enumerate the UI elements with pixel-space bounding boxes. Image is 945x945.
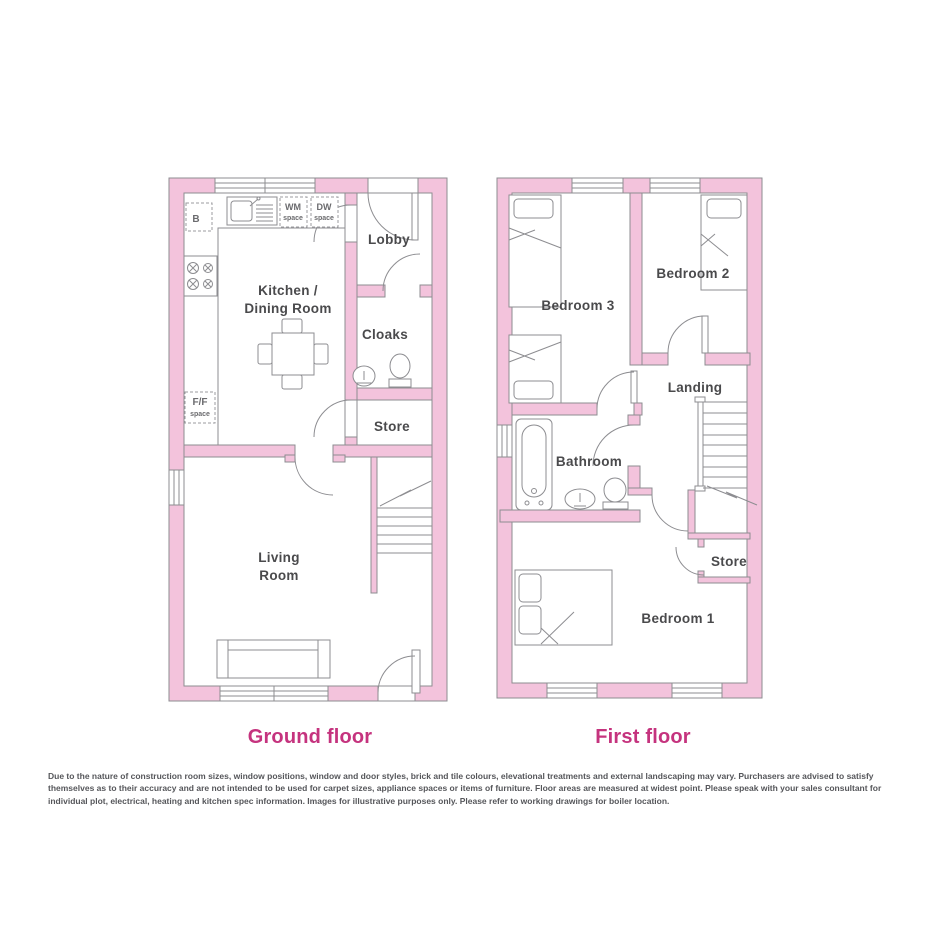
window xyxy=(220,686,328,701)
single-bed xyxy=(509,335,561,403)
sofa xyxy=(217,640,330,678)
room-label-living: Room xyxy=(259,568,298,583)
room-label-bathroom: Bathroom xyxy=(556,454,622,469)
single-bed xyxy=(509,195,561,307)
ground-floor-plan: Kitchen / Dining Room Lobby Cloaks Store… xyxy=(169,178,447,701)
living-room-door xyxy=(295,457,333,495)
window xyxy=(547,683,597,698)
first-floor-caption: First floor xyxy=(503,726,783,749)
sink-icon xyxy=(227,197,277,225)
stairs-direction-arrow xyxy=(380,481,431,506)
front-door xyxy=(368,178,418,240)
bedroom1-door xyxy=(652,495,688,531)
hob-icon xyxy=(184,256,217,296)
label-wm-space: space xyxy=(283,215,303,222)
floorplan-page: Kitchen / Dining Room Lobby Cloaks Store… xyxy=(0,0,945,945)
label-wm: WM xyxy=(285,202,301,212)
room-label-bedroom1: Bedroom 1 xyxy=(641,611,714,626)
bedroom3-door xyxy=(597,371,637,409)
dining-table xyxy=(258,319,328,389)
window xyxy=(650,178,700,193)
rear-door xyxy=(378,650,420,701)
window xyxy=(572,178,623,193)
label-ff-space: space xyxy=(190,411,210,418)
bedroom2-door xyxy=(668,316,708,353)
window xyxy=(215,178,315,193)
first-floor-plan: Bedroom 3 Bedroom 2 Landing Bathroom Sto… xyxy=(497,178,762,698)
room-label-kitchen: Kitchen / xyxy=(258,283,318,298)
label-ff: F/F xyxy=(193,397,208,408)
room-label-cloaks: Cloaks xyxy=(362,327,408,342)
window xyxy=(497,425,512,457)
window xyxy=(169,470,184,505)
disclaimer-text: Due to the nature of construction room s… xyxy=(48,770,898,807)
room-label-bedroom2: Bedroom 2 xyxy=(656,266,729,281)
window xyxy=(672,683,722,698)
toilet-icon xyxy=(603,478,628,509)
basin-icon xyxy=(565,489,595,509)
room-label-living: Living xyxy=(258,550,300,565)
interior-walls xyxy=(184,193,432,593)
toilet-icon xyxy=(389,354,411,387)
ground-floor-caption: Ground floor xyxy=(170,726,450,749)
label-dw: DW xyxy=(317,202,332,212)
label-dw-space: space xyxy=(314,215,334,222)
room-label-landing: Landing xyxy=(668,380,723,395)
cloaks-door xyxy=(383,254,420,291)
room-label-kitchen: Dining Room xyxy=(244,301,331,316)
room-label-store: Store xyxy=(711,554,747,569)
label-boiler: B xyxy=(192,214,199,225)
basin-icon xyxy=(353,366,375,386)
stairs xyxy=(377,481,432,553)
room-label-store: Store xyxy=(374,419,410,434)
double-bed xyxy=(515,570,612,645)
room-label-lobby: Lobby xyxy=(368,232,410,247)
store-door xyxy=(314,400,357,437)
room-label-bedroom3: Bedroom 3 xyxy=(541,298,614,313)
bathtub-icon xyxy=(516,419,552,510)
